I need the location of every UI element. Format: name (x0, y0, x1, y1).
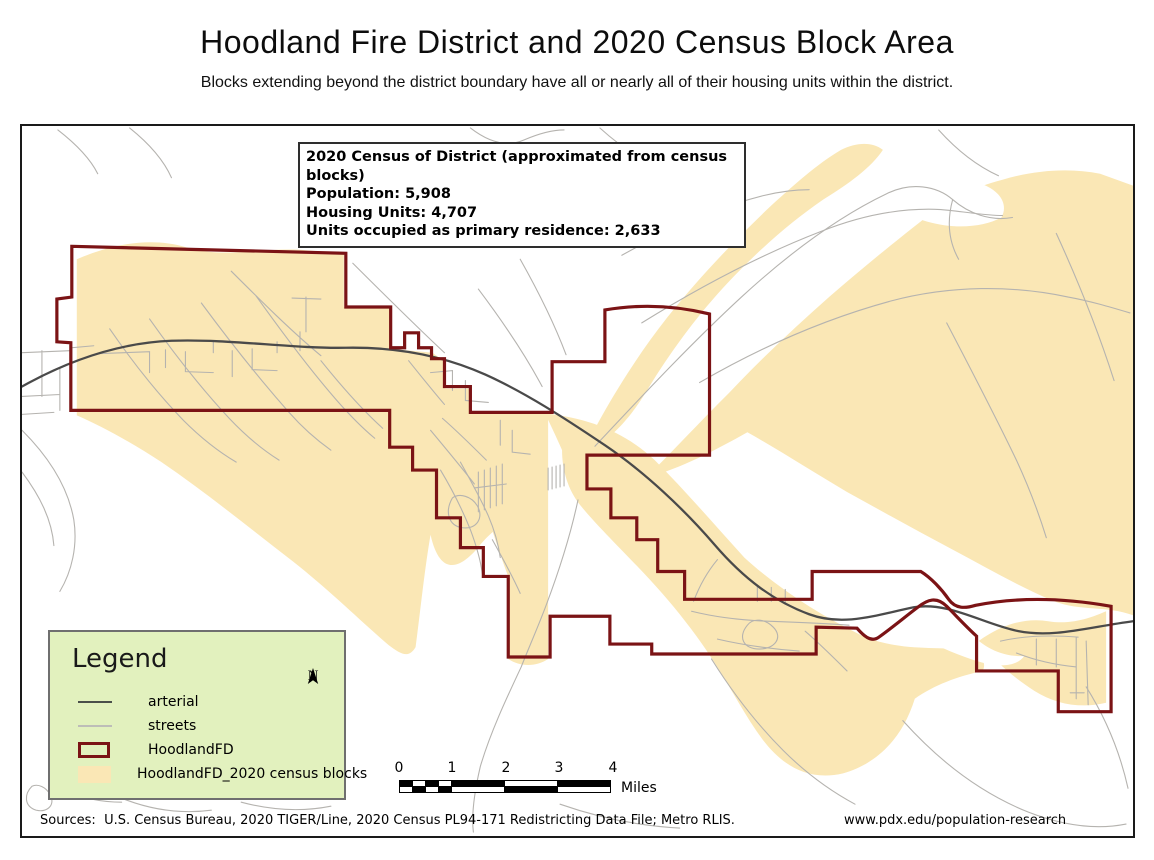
legend-item-hoodlandfd: HoodlandFD (50, 738, 344, 762)
legend-item-streets: streets (50, 714, 344, 738)
legend-item-census-blocks: HoodlandFD_2020 census blocks (50, 762, 344, 786)
legend-item-arterial: arterial (50, 690, 344, 714)
district-outline-swatch (78, 742, 122, 758)
scale-tick: 2 (500, 760, 512, 776)
legend-label: streets (122, 718, 196, 734)
scale-tick: 0 (393, 760, 405, 776)
scale-unit: Miles (621, 780, 657, 796)
legend: Legend arterial streets HoodlandFD Hoodl… (48, 630, 346, 800)
census-occupied-units: Units occupied as primary residence: 2,6… (306, 222, 738, 241)
scale-tick: 4 (607, 760, 619, 776)
page-subtitle: Blocks extending beyond the district bou… (0, 74, 1154, 92)
census-housing-units: Housing Units: 4,707 (306, 204, 738, 223)
north-arrow: N (298, 668, 328, 685)
legend-label: HoodlandFD_2020 census blocks (111, 766, 367, 782)
streets-line-swatch (78, 725, 122, 727)
map-canvas: 2020 Census of District (approximated fr… (20, 124, 1135, 838)
scale-tick: 3 (553, 760, 565, 776)
map-page: Hoodland Fire District and 2020 Census B… (0, 0, 1154, 860)
legend-label: arterial (122, 694, 199, 710)
legend-title: Legend (72, 644, 168, 674)
sources-note: Sources: U.S. Census Bureau, 2020 TIGER/… (40, 813, 735, 828)
north-arrow-icon (298, 668, 328, 685)
legend-label: HoodlandFD (122, 742, 234, 758)
census-stats-heading: 2020 Census of District (approximated fr… (306, 148, 738, 185)
website-url: www.pdx.edu/population-research (844, 813, 1066, 828)
census-stats-box: 2020 Census of District (approximated fr… (298, 142, 746, 248)
census-blocks-fill-swatch (78, 766, 111, 783)
page-title: Hoodland Fire District and 2020 Census B… (0, 24, 1154, 61)
scale-bar-graphic (399, 780, 611, 793)
legend-items: arterial streets HoodlandFD HoodlandFD_2… (50, 690, 344, 786)
scale-tick: 1 (446, 760, 458, 776)
census-population: Population: 5,908 (306, 185, 738, 204)
arterial-line-swatch (78, 701, 122, 703)
scale-bar: 0 1 2 3 4 Miles (397, 760, 667, 802)
